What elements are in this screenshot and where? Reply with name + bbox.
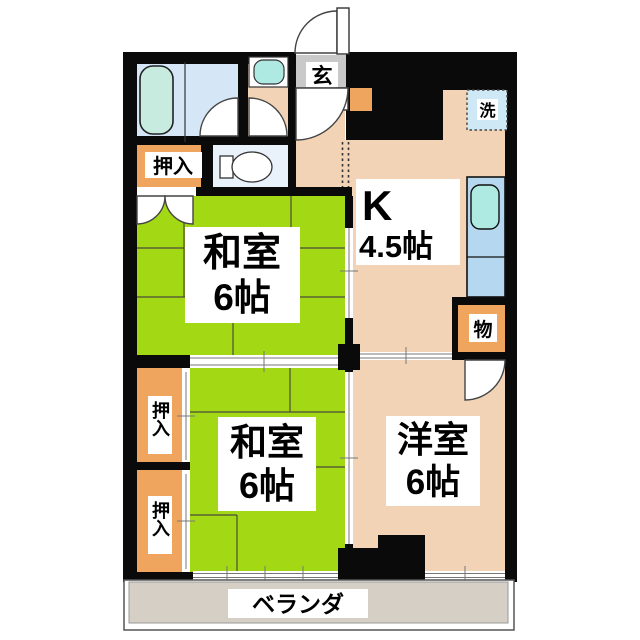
wall-left bbox=[123, 52, 137, 582]
toilet-tank-icon bbox=[220, 156, 233, 178]
veranda: ベランダ bbox=[124, 580, 514, 630]
wall-kitchen-washitsu-b bbox=[345, 318, 353, 348]
wall-junction-post bbox=[338, 344, 360, 370]
closet-top-label: 押入 bbox=[153, 154, 193, 178]
wall-closet-top bbox=[123, 355, 190, 368]
wall-kitchen-washitsu-a bbox=[345, 196, 353, 228]
washbasin-icon bbox=[254, 60, 284, 84]
veranda-label: ベランダ bbox=[252, 591, 344, 617]
wall-bottom-pillar bbox=[338, 548, 425, 582]
entry-door-arc bbox=[295, 11, 337, 53]
closet-left-upper-label: 押入 bbox=[150, 400, 170, 437]
genkan-label: 玄 bbox=[312, 64, 333, 88]
wall-right bbox=[505, 52, 517, 582]
yoshitsu-name: 洋室 bbox=[397, 419, 469, 460]
wall-below-bath bbox=[135, 136, 296, 145]
kitchen-name: K bbox=[362, 182, 392, 229]
floor-plan-page: ベランダ 和室 6帖 和室 6帖 洋室 6帖 K 4.5帖 玄 洗 物 押入 押… bbox=[0, 0, 640, 640]
washitsu-upper-size: 6帖 bbox=[213, 277, 271, 318]
wall-storage-left bbox=[452, 297, 458, 360]
toilet-icon bbox=[232, 152, 272, 182]
entry-door-leaf bbox=[337, 8, 349, 54]
wall-washitsu-upper-top bbox=[196, 187, 352, 196]
bathtub-icon bbox=[140, 66, 173, 134]
wall-storage-top bbox=[452, 297, 508, 305]
washitsu-upper-name: 和室 bbox=[203, 232, 281, 275]
washitsu-lower-size: 6帖 bbox=[239, 465, 295, 506]
wall-pillar-extension bbox=[378, 535, 425, 551]
floor-plan: ベランダ 和室 6帖 和室 6帖 洋室 6帖 K 4.5帖 玄 洗 物 押入 押… bbox=[0, 0, 640, 640]
storage-label: 物 bbox=[473, 318, 492, 341]
kitchen-size: 4.5帖 bbox=[359, 229, 433, 264]
closet-left-lower-label: 押入 bbox=[150, 500, 170, 537]
wall-storage-bottom bbox=[452, 352, 508, 360]
wall-bath-washroom bbox=[238, 58, 248, 142]
washer-label: 洗 bbox=[479, 101, 495, 120]
yoshitsu-size: 6帖 bbox=[406, 463, 460, 502]
washitsu-lower-name: 和室 bbox=[230, 421, 304, 463]
wall-washroom-genkan bbox=[288, 52, 296, 192]
wall-closet-divider bbox=[137, 462, 190, 470]
entry-step-cabinet bbox=[350, 88, 372, 111]
kitchen-sink-icon bbox=[471, 185, 499, 229]
